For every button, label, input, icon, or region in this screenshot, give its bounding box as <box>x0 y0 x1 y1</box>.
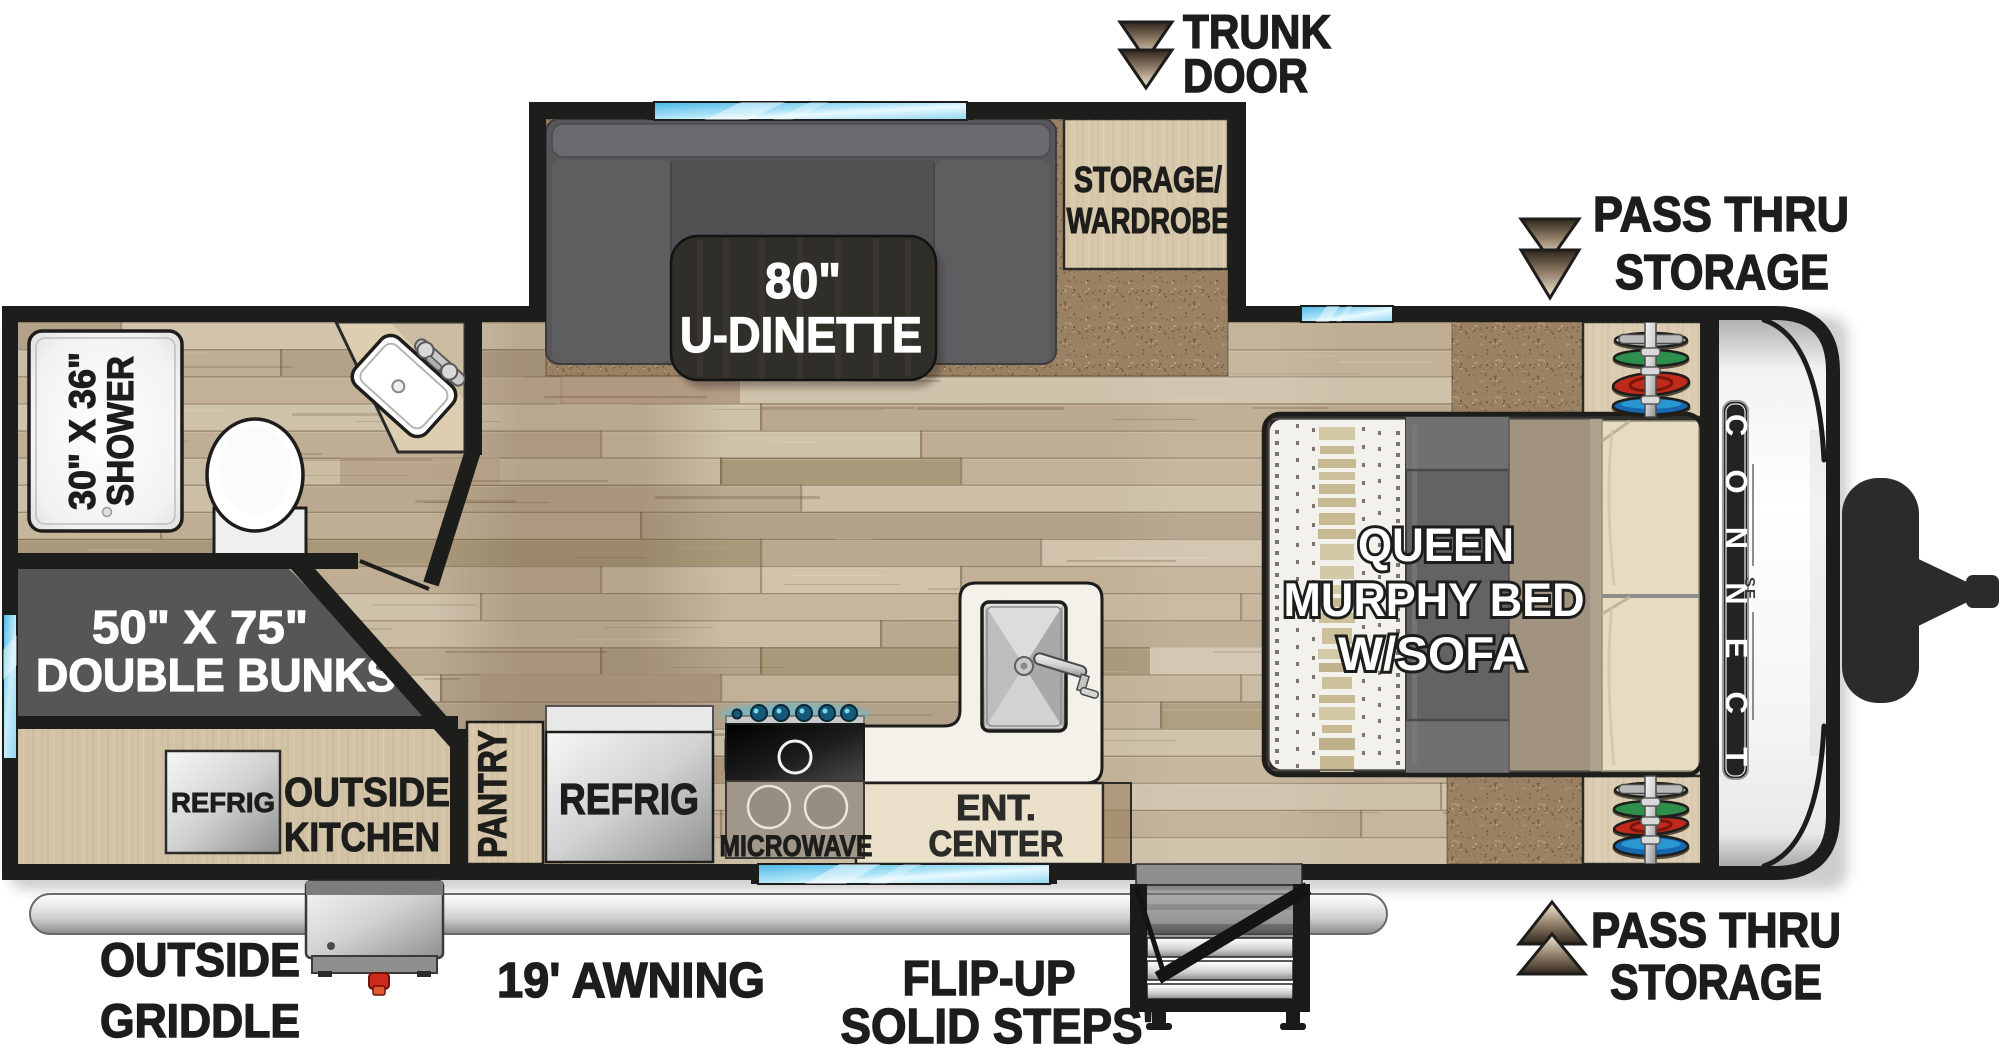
svg-text:STORAGE/: STORAGE/ <box>1074 159 1222 200</box>
svg-text:SHOWER: SHOWER <box>100 356 141 506</box>
svg-text:SOLID STEPS': SOLID STEPS' <box>841 1000 1154 1045</box>
svg-text:PASS THRU: PASS THRU <box>1593 188 1849 242</box>
svg-text:MICROWAVE: MICROWAVE <box>720 830 873 863</box>
svg-text:PANTRY: PANTRY <box>471 730 515 858</box>
svg-text:30" X 36": 30" X 36" <box>62 352 103 510</box>
svg-text:SE: SE <box>1741 577 1758 601</box>
svg-text:19' AWNING: 19' AWNING <box>497 954 765 1008</box>
svg-text:REFRIG: REFRIG <box>171 787 275 818</box>
svg-text:KITCHEN: KITCHEN <box>284 814 440 860</box>
svg-text:CENTER: CENTER <box>929 823 1064 864</box>
svg-text:80": 80" <box>765 253 841 309</box>
svg-text:ENT.: ENT. <box>956 787 1036 828</box>
svg-text:REFRIG: REFRIG <box>559 775 699 824</box>
svg-text:GRIDDLE: GRIDDLE <box>100 994 300 1045</box>
svg-text:W/SOFA: W/SOFA <box>1338 627 1526 680</box>
svg-text:MURPHY BED: MURPHY BED <box>1284 573 1585 626</box>
svg-text:FLIP-UP: FLIP-UP <box>903 952 1076 1006</box>
svg-text:STORAGE: STORAGE <box>1615 246 1829 300</box>
svg-text:DOOR: DOOR <box>1183 49 1308 102</box>
svg-text:QUEEN: QUEEN <box>1358 518 1514 571</box>
svg-text:U-DINETTE: U-DINETTE <box>680 307 922 363</box>
svg-text:WARDROBE: WARDROBE <box>1067 200 1230 241</box>
svg-text:OUTSIDE: OUTSIDE <box>284 769 450 815</box>
svg-text:STORAGE: STORAGE <box>1610 956 1822 1010</box>
svg-text:50" X 75": 50" X 75" <box>92 601 308 653</box>
svg-text:DOUBLE BUNKS: DOUBLE BUNKS <box>36 649 396 701</box>
svg-text:PASS THRU: PASS THRU <box>1591 904 1841 958</box>
svg-text:OUTSIDE: OUTSIDE <box>100 933 300 986</box>
